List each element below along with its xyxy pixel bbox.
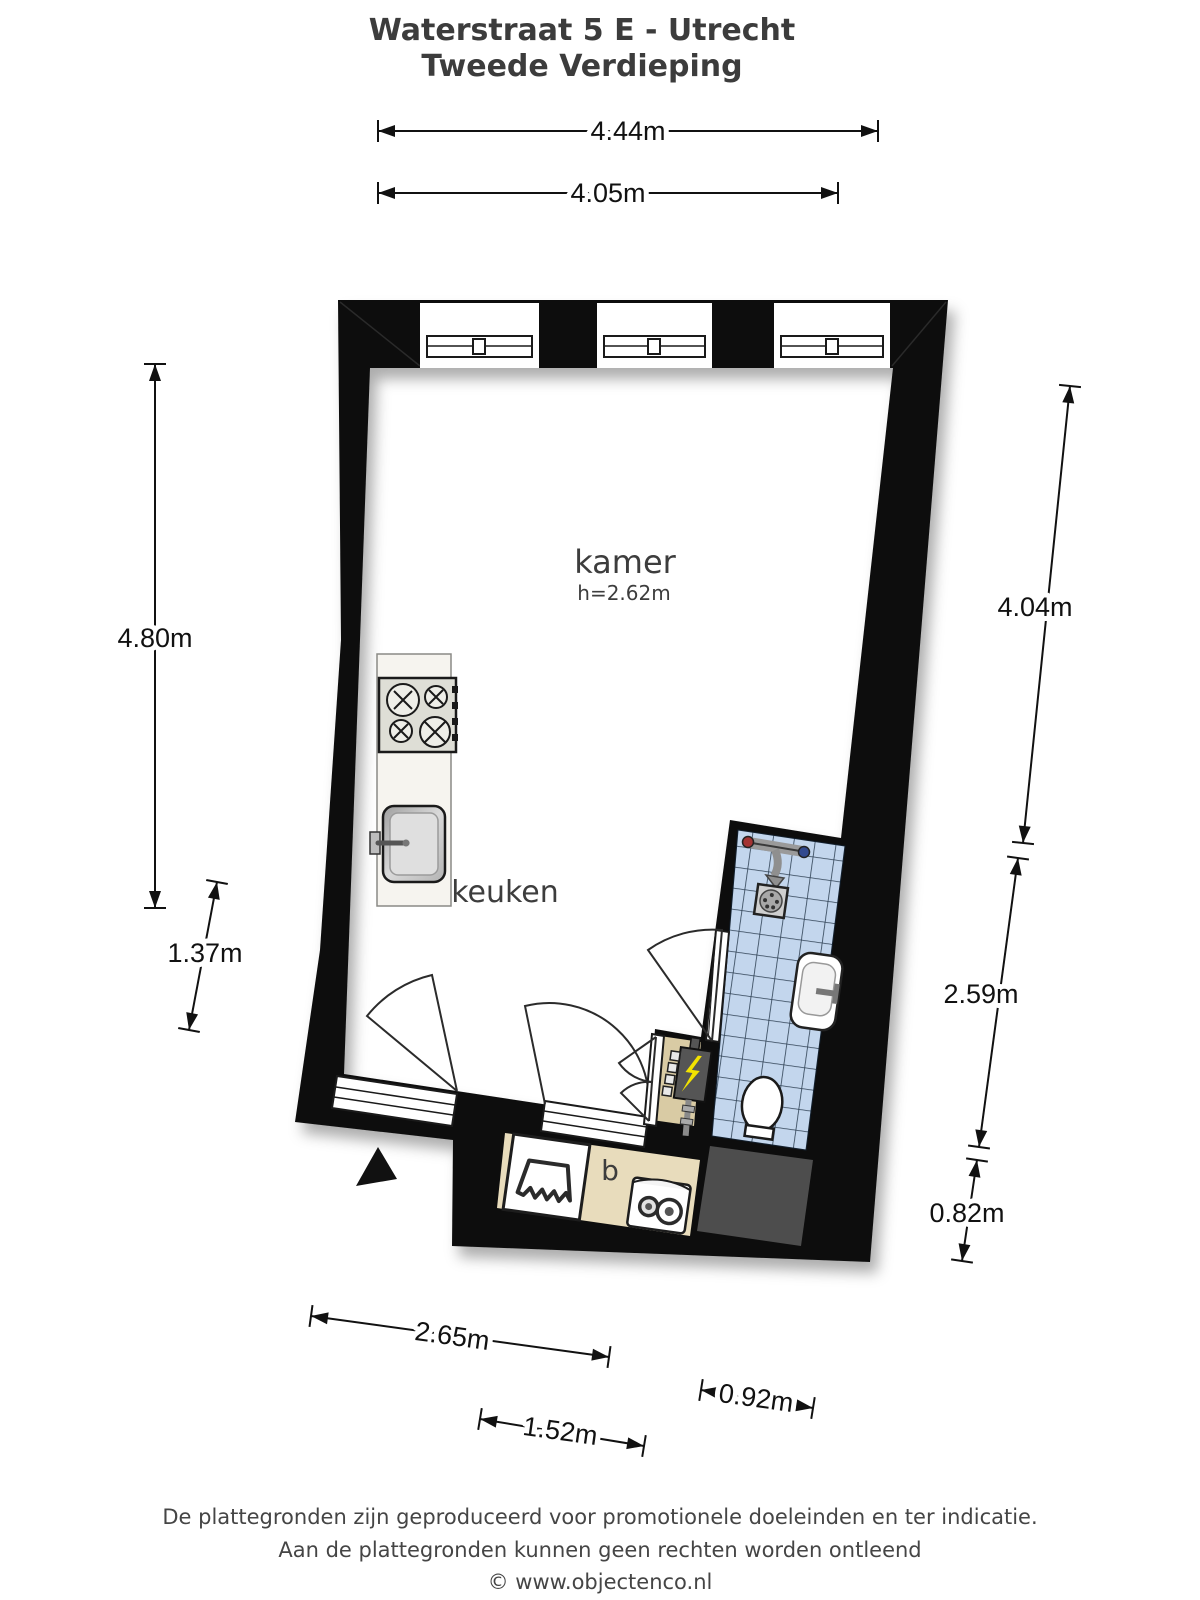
dim-left-main: 4.80m — [117, 623, 192, 653]
floorplan-drawing: Waterstraat 5 E - Utrecht Tweede Verdiep… — [0, 0, 1200, 1600]
shower-drain-icon — [754, 884, 788, 918]
shaft-void — [697, 1146, 813, 1246]
balcony-door — [332, 975, 457, 1126]
page-title: Waterstraat 5 E - Utrecht — [369, 13, 796, 48]
bathroom-door — [648, 930, 729, 1042]
dim-bottom-inner: 1.52m — [521, 1411, 599, 1451]
washbasin-icon — [789, 951, 844, 1032]
label-keuken: keuken — [451, 875, 559, 910]
floorplan-page: Waterstraat 5 E - Utrecht Tweede Verdiep… — [0, 0, 1200, 1600]
window-top-2 — [597, 303, 712, 368]
label-kamer: kamer — [574, 543, 676, 581]
page-subtitle: Tweede Verdieping — [421, 49, 742, 84]
dim-left-lower: 1.37m — [167, 938, 242, 968]
dim-right-upper: 4.04m — [997, 592, 1072, 622]
window-top-1 — [420, 303, 539, 368]
dim-bottom-right: 0.92m — [717, 1378, 795, 1418]
footer-disclaimer-1: De plattegronden zijn geproduceerd voor … — [162, 1505, 1037, 1529]
label-room-b: b — [601, 1154, 619, 1187]
dim-top-inner: 4.05m — [570, 178, 645, 208]
meter-closet-doors — [619, 1034, 664, 1126]
footer-disclaimer-2: Aan de plattegronden kunnen geen rechten… — [278, 1538, 921, 1562]
dim-bottom-main: 2.65m — [413, 1316, 491, 1356]
shower-tray-icon — [503, 1134, 590, 1220]
dim-right-lower: 0.82m — [929, 1198, 1004, 1228]
dim-right-middle: 2.59m — [943, 979, 1018, 1009]
window-top-3 — [774, 303, 890, 368]
dim-top-outer: 4.44m — [590, 116, 665, 146]
washing-machine-icon — [627, 1176, 691, 1234]
entrance-arrow-icon — [356, 1147, 397, 1186]
stove-icon — [379, 678, 458, 752]
label-kamer-height: h=2.62m — [577, 581, 670, 605]
footer-copyright: © www.objectenco.nl — [488, 1570, 713, 1594]
